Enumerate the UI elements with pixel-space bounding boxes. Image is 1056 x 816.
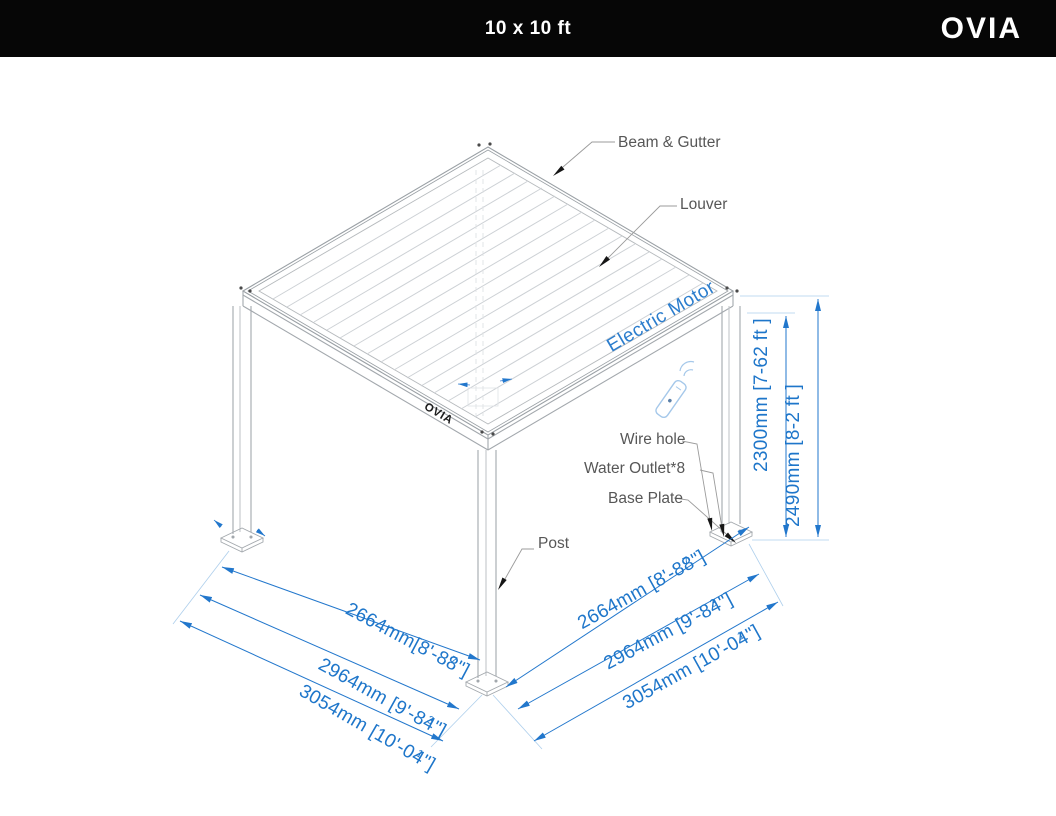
front-right-fascia [488,291,733,450]
corner-marks [239,142,738,435]
base-plate-left [221,528,263,552]
louver-lines [273,165,703,417]
label-wire-hole: Wire hole [620,431,685,449]
pergola-spec-page: 10 x 10 ft OVIA [0,0,1056,816]
remote-signal-waves [680,362,694,376]
front-left-fascia [243,291,488,450]
post-left [233,306,251,534]
leader-beam-gutter [556,142,615,173]
dim-height-2490: 2490mm [8-2 ft ] [783,384,805,527]
pergola-diagram-canvas [0,0,1056,816]
hidden-motor-lines [476,170,483,416]
label-louver: Louver [680,196,727,214]
leader-arrowheads [498,166,736,590]
roof-outline-inner [248,150,728,432]
remote-control-icon [654,362,694,420]
leader-louver [602,206,677,264]
label-water-outlet: Water Outlet*8 [584,460,685,478]
post-right [722,306,740,526]
base-plate-front [466,672,508,696]
dim-height-2300: 2300mm [7-62 ft ] [751,318,773,472]
roof-outline [243,147,733,435]
label-post: Post [538,535,569,553]
leader-wire-hole [682,441,711,527]
label-base-plate: Base Plate [608,490,683,508]
label-beam-gutter: Beam & Gutter [618,134,721,152]
gutter-rim [259,158,717,424]
